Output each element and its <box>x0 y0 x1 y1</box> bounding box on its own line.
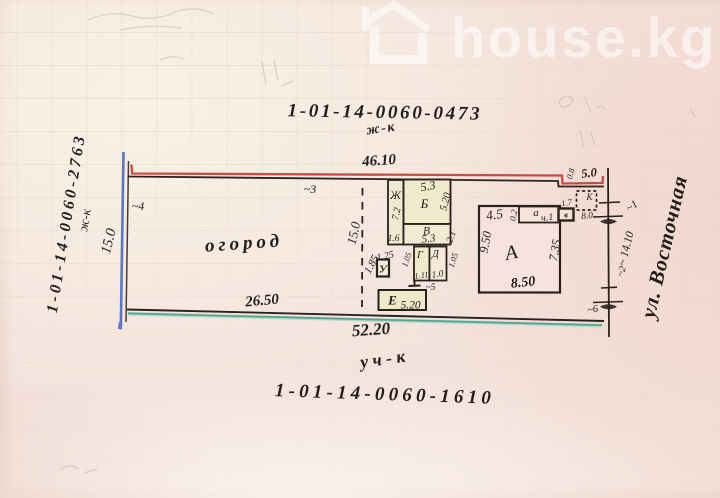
svg-text:46.10: 46.10 <box>361 152 397 170</box>
svg-text:Д: Д <box>431 249 440 260</box>
svg-text:У: У <box>379 264 388 276</box>
svg-text:1.11: 1.11 <box>414 269 430 281</box>
svg-text:house.kg: house.kg <box>451 6 717 69</box>
svg-text:Ж: Ж <box>389 188 402 202</box>
svg-text:8.50: 8.50 <box>510 274 536 291</box>
svg-text:8.0: 8.0 <box>581 211 594 222</box>
svg-text:5.20: 5.20 <box>400 300 420 312</box>
svg-text:~5: ~5 <box>426 283 436 293</box>
svg-text:~3: ~3 <box>304 182 317 196</box>
svg-text:ч.1: ч.1 <box>540 212 554 225</box>
svg-text:5.3: 5.3 <box>421 232 436 245</box>
svg-text:26.50: 26.50 <box>244 292 281 311</box>
svg-text:5.3: 5.3 <box>419 178 436 194</box>
svg-text:1.0: 1.0 <box>431 269 444 281</box>
svg-text:~4: ~4 <box>132 199 145 213</box>
svg-text:5.0: 5.0 <box>581 165 599 181</box>
svg-text:а: а <box>533 207 539 219</box>
svg-text:Г: Г <box>416 250 424 261</box>
svg-text:4.5: 4.5 <box>485 206 504 223</box>
svg-text:Е: Е <box>387 293 397 308</box>
svg-text:Б: Б <box>420 196 429 211</box>
svg-text:К: К <box>586 192 594 202</box>
svg-text:1.6: 1.6 <box>388 234 400 244</box>
svg-text:52.20: 52.20 <box>351 319 391 341</box>
svg-text:в: в <box>564 211 568 220</box>
